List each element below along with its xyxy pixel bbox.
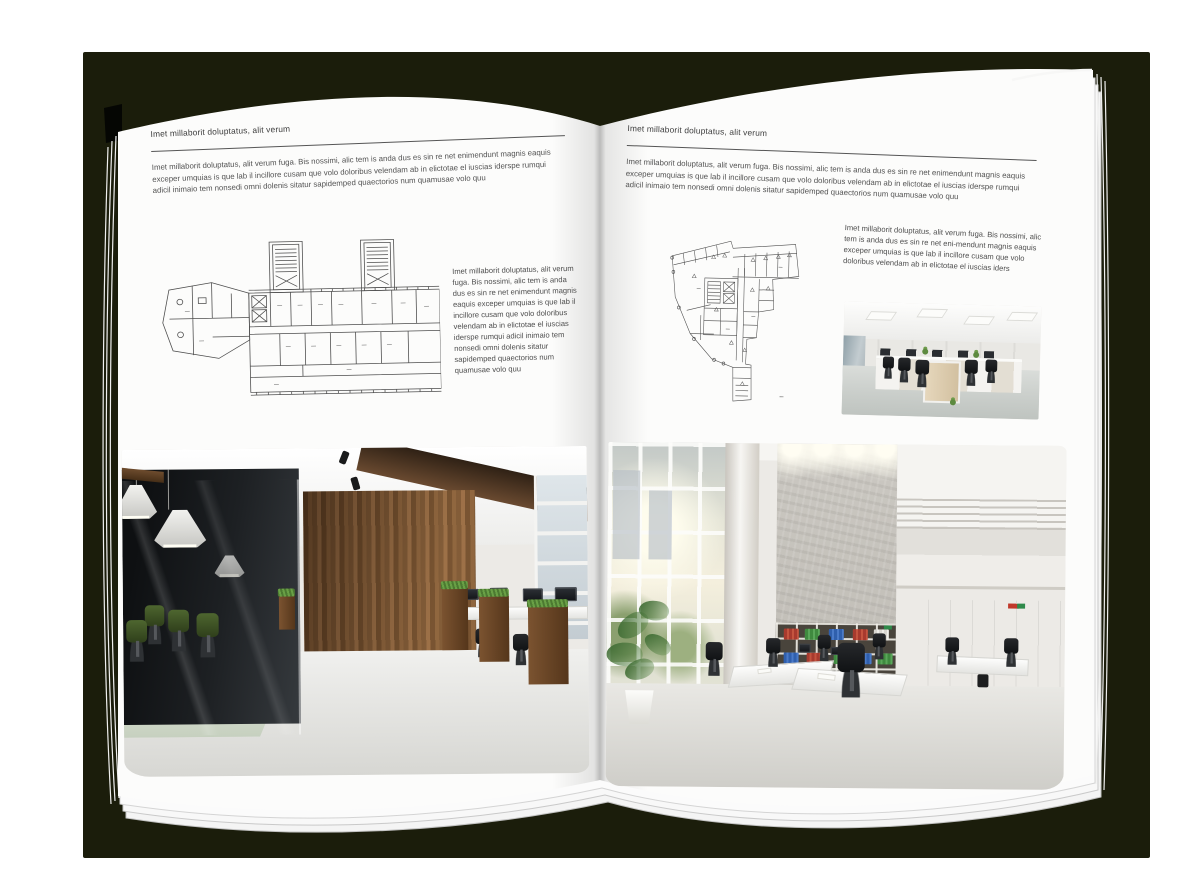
exit-sign [884, 625, 892, 629]
office-chair [872, 634, 885, 660]
ceiling-light-panel [865, 311, 897, 321]
floorplan-walls [668, 240, 800, 403]
lamp-cord [168, 469, 169, 510]
office-chair [883, 356, 895, 378]
left-page-stack-lines [103, 136, 119, 804]
ceiling-light-panel [916, 308, 948, 318]
green-exit-sign [1017, 603, 1025, 608]
desk-row [458, 606, 588, 620]
office-chair [898, 358, 911, 383]
office-chair [705, 642, 722, 676]
wood-planter [279, 596, 295, 630]
office-chair [964, 360, 978, 386]
office-chair [945, 637, 959, 664]
concrete-feature-wall [776, 443, 897, 640]
right-page-title: Imet millaborit doluptatus, alit verum [627, 123, 1037, 148]
office-chair-foreground [837, 643, 865, 698]
office-chair [1004, 639, 1019, 668]
photo-office-meeting-room [122, 446, 590, 777]
floorplan-walls [161, 238, 442, 397]
office-chair [766, 638, 781, 667]
monitor [799, 643, 811, 652]
right-floorplan-figure [653, 225, 807, 410]
photo-open-plan-office [842, 301, 1042, 419]
green-office-chair [196, 613, 218, 657]
left-floorplan-figure [154, 231, 442, 415]
green-office-chair [169, 609, 190, 651]
office-chair [915, 359, 929, 387]
left-page-caption: Imet millaborit doluptatus, alit verum f… [452, 263, 582, 376]
wood-planter [441, 588, 468, 650]
glass-meeting-room [122, 468, 301, 725]
red-binders [783, 628, 798, 639]
red-binders [852, 629, 867, 640]
city-skyline [649, 491, 672, 560]
wood-planter [479, 595, 510, 661]
office-chair [817, 635, 830, 661]
waste-bin [977, 674, 988, 687]
wood-planter [528, 606, 569, 684]
mezzanine-balcony [896, 445, 1067, 591]
city-skyline [612, 470, 640, 560]
brochure-mockup-stage: Imet millaborit doluptatus, alit verum I… [0, 0, 1200, 891]
office-chair [985, 360, 997, 384]
floorplan-tall-drawing [653, 225, 807, 410]
ceiling [844, 301, 1042, 343]
left-page-header-block: Imet millaborit doluptatus, alit verum I… [150, 104, 567, 197]
right-page-header-block: Imet millaborit doluptatus, alit verum I… [625, 114, 1038, 206]
stone-floor [606, 683, 1065, 790]
green-office-chair [126, 620, 147, 662]
blue-binders [829, 629, 844, 640]
photo-atrium-office [606, 442, 1067, 790]
floorplan-fixture-symbols [690, 251, 792, 397]
green-office-chair [144, 606, 164, 645]
left-page-title: Imet millaborit doluptatus, alit verum [150, 113, 564, 139]
office-chair [512, 634, 528, 665]
floorplan-wide-drawing [154, 231, 442, 415]
floorplan-dimension-marks [185, 302, 431, 386]
